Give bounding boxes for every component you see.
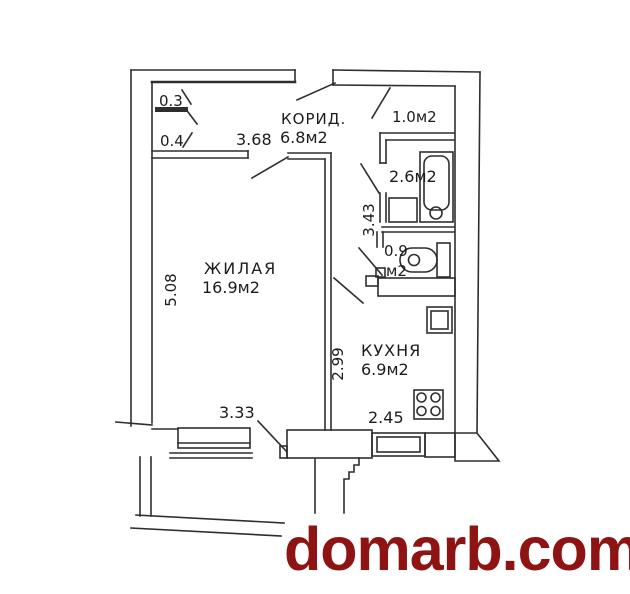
- bathtub-icon: [420, 152, 453, 222]
- wc-area-label-line1: 0.9: [384, 242, 408, 260]
- stove-icon: [414, 390, 443, 419]
- kitchen-sink-icon: [427, 307, 452, 333]
- balcony: [131, 457, 284, 536]
- closet-area-label: 1.0м2: [392, 108, 437, 126]
- washbasin-icon: [389, 198, 417, 222]
- living-area-label: 16.9м2: [202, 278, 260, 297]
- kitchen-area-label: 6.9м2: [361, 360, 409, 379]
- scanned-floor-plan-page: 0.3 0.4 КОРИД. 6.8м2 3.68 1.0м2 2.6м2 3.…: [0, 0, 630, 594]
- niche-upper-area-label: 0.3: [159, 92, 183, 110]
- bottom-walls-windows: [116, 421, 455, 458]
- dim-hall-length: 3.43: [360, 203, 378, 236]
- site-watermark: domarb.com: [284, 519, 630, 580]
- bathroom-area-label: 2.6м2: [389, 167, 437, 186]
- niche-lower-area-label: 0.4: [160, 132, 184, 150]
- kitchen-name-label: КУХНЯ: [361, 341, 421, 360]
- dim-living-height: 5.08: [162, 273, 180, 306]
- entrance-door: [297, 83, 335, 100]
- floor-plan-drawing: 0.3 0.4 КОРИД. 6.8м2 3.68 1.0м2 2.6м2 3.…: [0, 0, 630, 594]
- wc-area-label-line2: м2: [386, 262, 407, 280]
- corridor-name-label: КОРИД.: [281, 110, 346, 128]
- exterior-stairs-outline: [315, 458, 359, 513]
- living-name-label: ЖИЛАЯ: [204, 259, 277, 278]
- dim-corridor-width: 3.68: [236, 130, 272, 149]
- dim-kitchen-length: 2.99: [329, 347, 347, 380]
- dim-living-width: 3.33: [219, 403, 255, 422]
- corridor-area-label: 6.8м2: [280, 128, 328, 147]
- dim-kitchen-width: 2.45: [368, 408, 404, 427]
